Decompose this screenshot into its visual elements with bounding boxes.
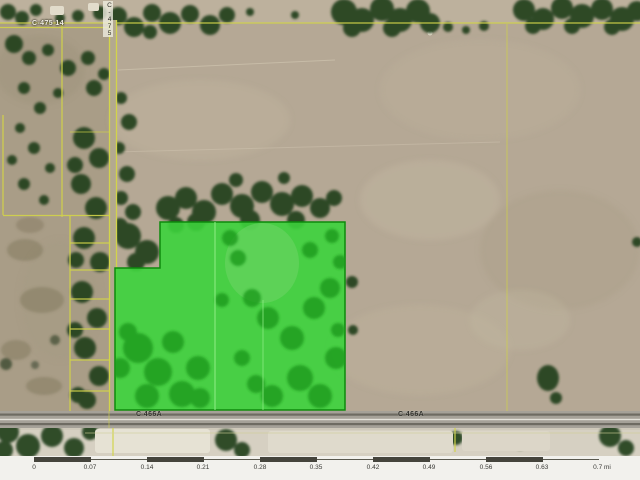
scale-label: 0.14 — [141, 464, 154, 472]
scale-label: 0.28 — [254, 464, 267, 472]
scale-bar-segment — [260, 457, 317, 462]
scale-label: 0.7 mi — [593, 464, 611, 472]
scale-bar: 0 0.07 0.14 0.21 0.28 0.35 0.42 0.49 0.5… — [0, 456, 640, 480]
road-label-c466a-right: C 466A — [398, 411, 424, 419]
road-label-c466a-left: C 466A — [136, 411, 162, 419]
gis-map-window: C-475 14 C-475 C 466A C 466A 0 0.07 0.14… — [0, 0, 640, 480]
scale-label: 0 — [32, 464, 36, 472]
scale-label: 0.56 — [480, 464, 493, 472]
scale-label: 0.49 — [423, 464, 436, 472]
scale-label: 0.07 — [84, 464, 97, 472]
road-label-c475-vertical: C-475 — [103, 1, 113, 37]
scale-label: 0.35 — [310, 464, 323, 472]
aerial-map-canvas[interactable]: C-475 14 C-475 C 466A C 466A — [0, 0, 640, 456]
road-c466a — [0, 411, 640, 428]
scale-bar-segment — [486, 457, 543, 462]
aerial-imagery — [0, 0, 640, 456]
scale-bar-segment — [147, 457, 204, 462]
scale-label: 0.42 — [367, 464, 380, 472]
scale-label: 0.63 — [536, 464, 549, 472]
scale-label: 0.21 — [197, 464, 210, 472]
road-label-c475: C-475 14 — [32, 20, 64, 28]
scale-bar-segment — [34, 457, 91, 462]
scale-bar-segment — [373, 457, 430, 462]
